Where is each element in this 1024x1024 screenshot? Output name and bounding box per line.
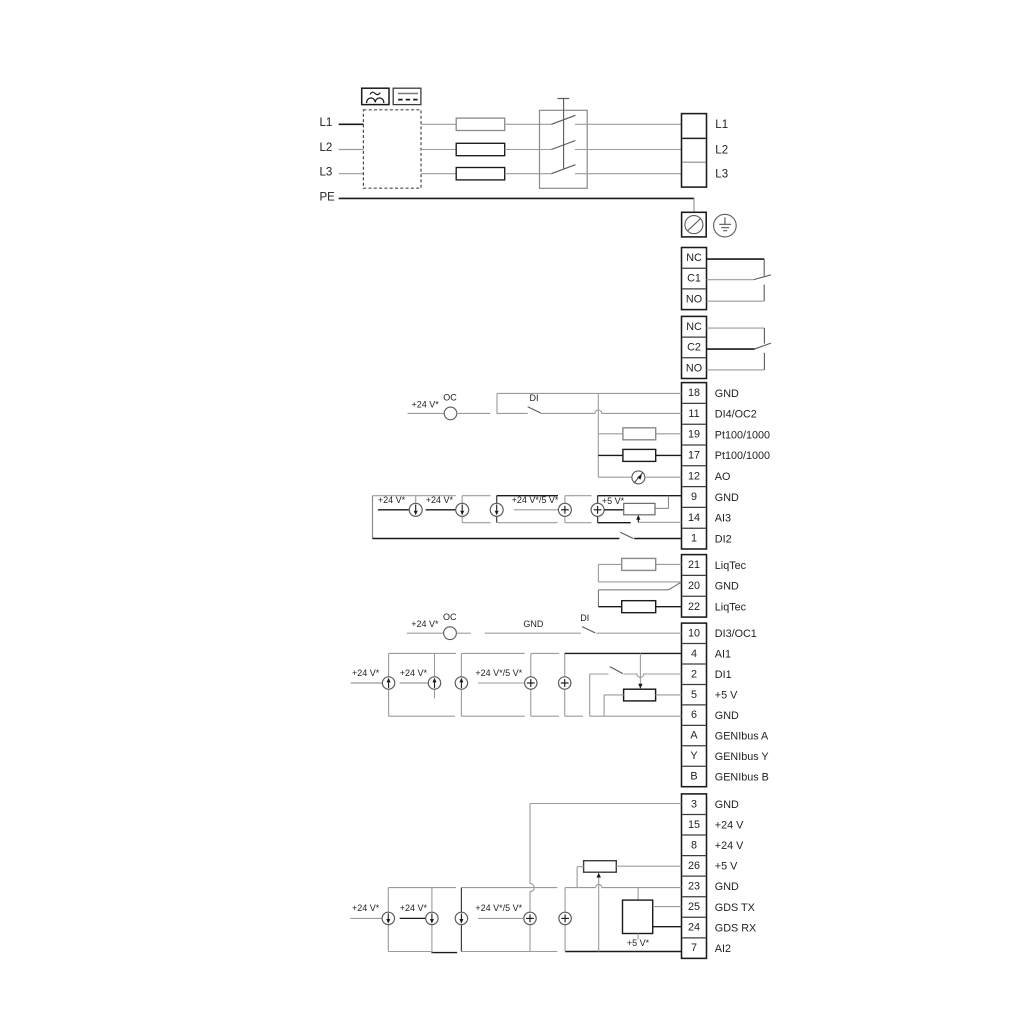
svg-text:L2: L2 — [715, 144, 728, 156]
svg-text:OC: OC — [443, 612, 457, 622]
svg-text:LiqTec: LiqTec — [715, 560, 747, 572]
svg-text:C1: C1 — [687, 273, 701, 285]
svg-text:DI4/OC2: DI4/OC2 — [715, 409, 757, 421]
svg-text:+5 V*: +5 V* — [627, 938, 650, 948]
svg-text:7: 7 — [691, 942, 697, 954]
svg-text:9: 9 — [691, 491, 697, 503]
svg-text:3: 3 — [691, 798, 697, 810]
svg-text:NC: NC — [686, 252, 702, 264]
svg-text:DI2: DI2 — [715, 533, 732, 545]
svg-text:4: 4 — [691, 648, 697, 660]
svg-text:GND: GND — [715, 799, 739, 811]
svg-text:GND: GND — [715, 492, 739, 504]
svg-text:+24 V*: +24 V* — [426, 495, 454, 505]
svg-text:DI3/OC1: DI3/OC1 — [715, 628, 757, 640]
svg-text:DI: DI — [580, 613, 589, 623]
svg-text:+5 V: +5 V — [715, 689, 738, 701]
svg-text:19: 19 — [688, 429, 700, 441]
svg-text:GND: GND — [715, 710, 739, 722]
svg-text:NC: NC — [686, 321, 702, 333]
svg-text:LiqTec: LiqTec — [715, 601, 747, 613]
svg-text:GND: GND — [523, 619, 544, 629]
svg-text:+5 V*: +5 V* — [602, 496, 625, 506]
svg-text:AI3: AI3 — [715, 513, 731, 525]
svg-text:NO: NO — [686, 362, 702, 374]
svg-text:DI1: DI1 — [715, 669, 732, 681]
svg-text:PE: PE — [320, 191, 336, 203]
svg-text:24: 24 — [688, 922, 700, 934]
svg-text:+24 V*: +24 V* — [378, 495, 406, 505]
svg-text:22: 22 — [688, 601, 700, 613]
svg-text:GND: GND — [715, 388, 739, 400]
svg-text:15: 15 — [688, 819, 700, 831]
svg-text:GND: GND — [715, 881, 739, 893]
svg-text:GENIbus Y: GENIbus Y — [715, 751, 769, 763]
svg-text:+24 V: +24 V — [715, 840, 744, 852]
svg-text:GENIbus A: GENIbus A — [715, 730, 769, 742]
svg-text:OC: OC — [443, 393, 457, 403]
svg-text:+24 V*: +24 V* — [352, 668, 380, 678]
svg-text:GENIbus B: GENIbus B — [715, 771, 769, 783]
svg-text:17: 17 — [688, 450, 700, 462]
svg-text:12: 12 — [688, 470, 700, 482]
svg-text:10: 10 — [688, 627, 700, 639]
svg-text:2: 2 — [691, 668, 697, 680]
svg-text:B: B — [690, 771, 697, 783]
svg-text:C2: C2 — [687, 342, 701, 354]
svg-text:+24 V*: +24 V* — [352, 903, 380, 913]
svg-text:L3: L3 — [715, 169, 728, 181]
svg-text:L1: L1 — [320, 117, 333, 129]
svg-text:20: 20 — [688, 580, 700, 592]
svg-text:23: 23 — [688, 881, 700, 893]
svg-text:NO: NO — [686, 293, 702, 305]
svg-text:Y: Y — [690, 750, 697, 762]
svg-text:21: 21 — [688, 559, 700, 571]
svg-text:11: 11 — [688, 408, 699, 420]
svg-text:+24 V*/5 V*: +24 V*/5 V* — [512, 495, 559, 505]
svg-text:+24 V*: +24 V* — [400, 903, 428, 913]
svg-text:GDS RX: GDS RX — [715, 922, 756, 934]
svg-text:18: 18 — [688, 387, 700, 399]
svg-text:AI1: AI1 — [715, 649, 731, 661]
svg-text:Pt100/1000: Pt100/1000 — [715, 450, 770, 462]
svg-text:+24 V*: +24 V* — [400, 668, 428, 678]
svg-text:GND: GND — [715, 581, 739, 593]
svg-text:14: 14 — [688, 512, 700, 524]
svg-text:5: 5 — [691, 689, 697, 701]
svg-text:26: 26 — [688, 860, 700, 872]
svg-text:+24 V: +24 V — [715, 820, 744, 832]
svg-text:8: 8 — [691, 839, 697, 851]
svg-text:+24 V*/5 V*: +24 V*/5 V* — [475, 668, 522, 678]
svg-text:AO: AO — [715, 471, 731, 483]
svg-text:DI: DI — [530, 393, 539, 403]
svg-text:L1: L1 — [715, 119, 728, 131]
svg-text:25: 25 — [688, 901, 700, 913]
svg-text:GDS TX: GDS TX — [715, 902, 755, 914]
svg-text:+5 V: +5 V — [715, 861, 738, 873]
svg-text:+24 V*: +24 V* — [412, 399, 440, 409]
svg-text:+24 V*/5 V*: +24 V*/5 V* — [475, 903, 522, 913]
svg-text:+24 V*: +24 V* — [411, 619, 439, 629]
svg-text:L3: L3 — [320, 166, 333, 178]
svg-text:AI2: AI2 — [715, 943, 731, 955]
svg-text:Pt100/1000: Pt100/1000 — [715, 429, 770, 441]
svg-text:L2: L2 — [320, 142, 333, 154]
svg-text:1: 1 — [691, 533, 697, 545]
svg-text:A: A — [690, 730, 698, 742]
svg-text:6: 6 — [691, 709, 697, 721]
